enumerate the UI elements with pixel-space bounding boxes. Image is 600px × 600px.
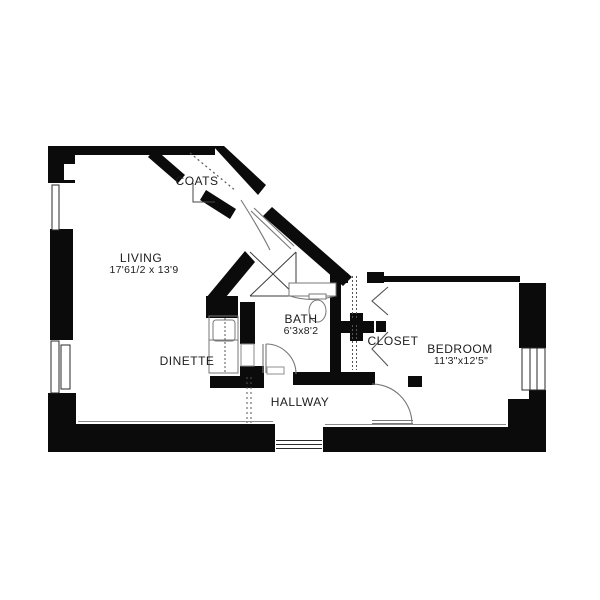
floor-plan-drawing — [0, 0, 600, 600]
room-label-living: LIVING — [120, 251, 162, 265]
kitchen-sink — [213, 320, 235, 341]
window-bedroom — [522, 348, 545, 390]
wall-bottom-left — [74, 424, 275, 452]
room-dims-bedroom: 11'3"x12'5" — [434, 355, 488, 367]
wall-coats-pier — [200, 190, 236, 219]
wall-bottom-right — [323, 427, 510, 452]
room-label-coats: COATS — [176, 174, 219, 188]
wall-right-pier — [519, 283, 546, 348]
wall-hall-top — [293, 372, 375, 385]
bedroom-door-arc — [372, 384, 412, 424]
wall-bath-door-jamb — [240, 366, 264, 380]
wall-closet-divider-cap — [376, 321, 386, 332]
window-left-lower-outer — [51, 341, 59, 393]
room-label-hallway: HALLWAY — [271, 395, 330, 409]
wall-notch — [64, 164, 76, 180]
wall-left-pier — [50, 229, 73, 340]
room-label-dinette: DINETTE — [160, 354, 215, 368]
wall-diagonal-exterior — [213, 146, 266, 195]
bath-door-arc — [266, 344, 296, 374]
wall-diagonal-entry — [263, 207, 352, 286]
bath-door — [263, 344, 296, 374]
room-dims-living: 17'61/2 x 13'9 — [110, 264, 179, 276]
wall-closet-top-pier — [367, 272, 384, 283]
window-left-lower-inner — [61, 345, 70, 389]
room-label-bedroom: BEDROOM — [427, 342, 493, 356]
room-dims-bath: 6'3x8'2 — [284, 325, 319, 337]
bath-door-threshold — [267, 367, 284, 374]
wall-bottomright-pier — [508, 399, 546, 452]
wall-bedroom-top — [383, 276, 520, 282]
room-label-closet: CLOSET — [367, 334, 418, 348]
bedroom-door — [372, 384, 413, 424]
wall-bath-left — [240, 302, 255, 344]
floor-plan: COATS LIVING 17'61/2 x 13'9 BATH 6'3x8'2… — [0, 0, 600, 600]
wall-right-step — [529, 390, 546, 402]
window-left-upper — [52, 185, 59, 230]
wall-bottomleft-pier — [48, 393, 76, 452]
room-label-bath: BATH — [284, 312, 317, 326]
bifold-upper — [372, 287, 388, 315]
wall-bedroom-door-jamb — [408, 376, 422, 387]
